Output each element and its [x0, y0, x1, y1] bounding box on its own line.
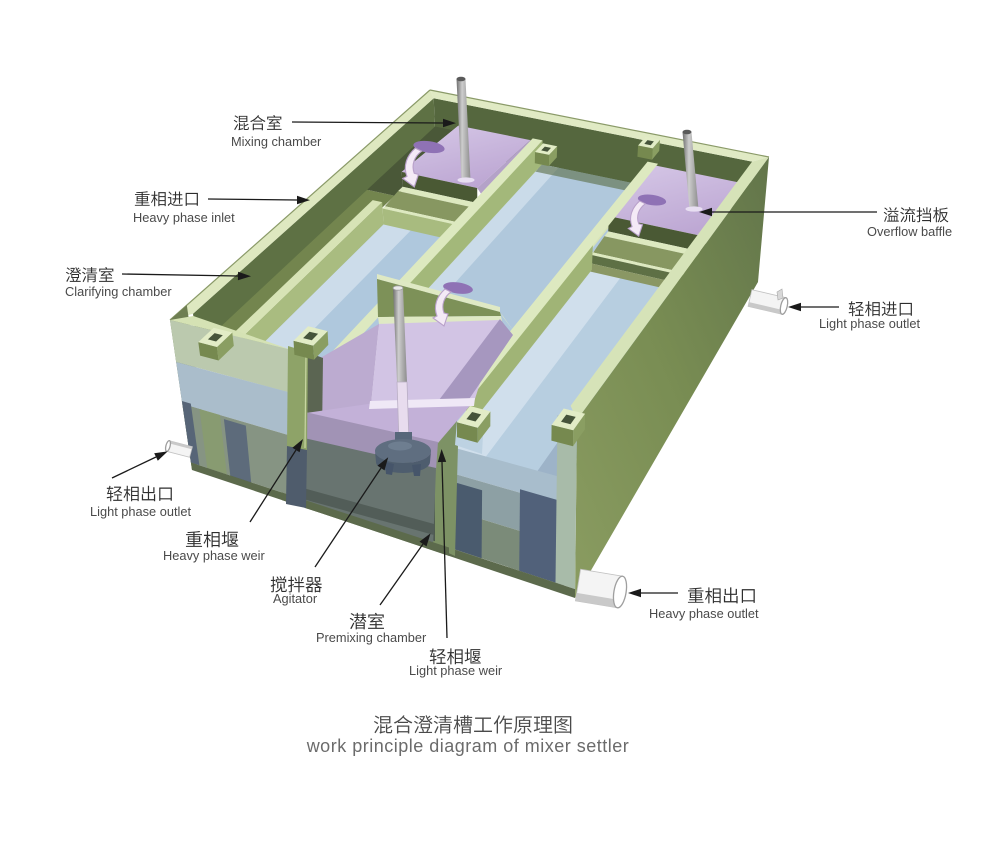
svg-text:Premixing chamber: Premixing chamber: [316, 630, 427, 645]
svg-text:work principle diagram of mixe: work principle diagram of mixer settler: [306, 736, 630, 756]
svg-text:Mixing chamber: Mixing chamber: [231, 134, 322, 149]
svg-text:Agitator: Agitator: [273, 591, 318, 606]
svg-text:Overflow baffle: Overflow baffle: [867, 224, 952, 239]
svg-text:Heavy phase outlet: Heavy phase outlet: [649, 606, 759, 621]
svg-text:Heavy phase weir: Heavy phase weir: [163, 548, 265, 563]
svg-text:Clarifying chamber: Clarifying chamber: [65, 284, 172, 299]
svg-text:Light phase weir: Light phase weir: [409, 663, 503, 678]
svg-text:Heavy phase inlet: Heavy phase inlet: [133, 210, 235, 225]
svg-text:Light phase outlet: Light phase outlet: [819, 316, 920, 331]
svg-text:Light phase outlet: Light phase outlet: [90, 504, 191, 519]
